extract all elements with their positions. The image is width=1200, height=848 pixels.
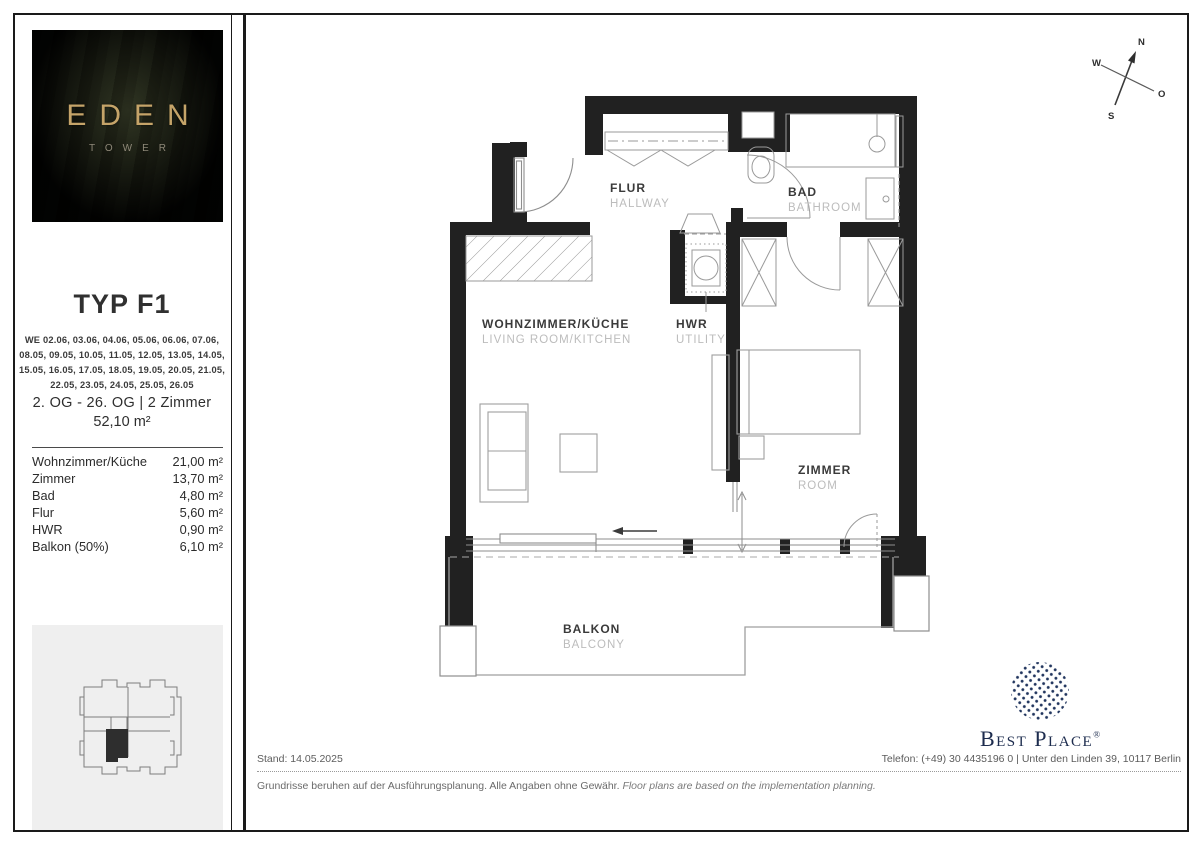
- label-wohn-de: WOHNZIMMER/KÜCHE: [482, 316, 629, 331]
- shower-tray: [786, 114, 895, 167]
- eden-tower-logo: EDEN TOWER: [32, 30, 223, 222]
- label-zimmer-de: ZIMMER: [798, 463, 851, 477]
- label-hwr-de: HWR: [676, 317, 708, 331]
- total-area: 52,10 m²: [13, 414, 231, 430]
- room-label: Bad: [32, 487, 55, 504]
- kitchen-zone-hatch: [466, 236, 592, 281]
- floors-and-rooms-line: 2. OG - 26. OG | 2 Zimmer: [13, 395, 231, 411]
- bedroom-door-and-wardrobes: [742, 237, 903, 306]
- compass-south-label: S: [1108, 111, 1114, 122]
- room-value: 0,90 m²: [180, 521, 223, 538]
- compass-needle: [1101, 51, 1154, 105]
- table-row: Wohnzimmer/Küche 21,00 m²: [32, 453, 223, 470]
- best-place-globe-icon: [999, 650, 1081, 732]
- room-value: 5,60 m²: [180, 504, 223, 521]
- building-keyplan: [32, 625, 223, 830]
- table-row: Zimmer 13,70 m²: [32, 470, 223, 487]
- table-row: Balkon (50%) 6,10 m²: [32, 538, 223, 555]
- balcony-outline: [449, 557, 893, 675]
- coffee-table: [560, 434, 597, 472]
- unit-numbers-line: 22.05, 23.05, 24.05, 25.05, 26.05: [13, 378, 231, 393]
- label-hwr-en: UTILITY: [676, 334, 726, 346]
- compass-north-label: N: [1138, 37, 1145, 48]
- washing-machine: [692, 250, 720, 286]
- sofa: [480, 404, 528, 502]
- sliding-door-indicator: [733, 482, 746, 552]
- sidebar-divider-thick: [243, 13, 246, 832]
- unit-numbers-line: WE 02.06, 03.06, 04.06, 05.06, 06.06, 07…: [13, 333, 231, 348]
- room-value: 4,80 m²: [180, 487, 223, 504]
- floorplan-drawing: FLUR HALLWAY BAD BATHROOM WOHNZIMMER/KÜC…: [430, 80, 960, 700]
- sliding-door-arrow: [612, 527, 657, 535]
- room-label: Wohnzimmer/Küche: [32, 453, 147, 470]
- label-flur-de: FLUR: [610, 181, 646, 195]
- best-place-brand: Best Place®: [955, 662, 1125, 752]
- plan-date: Stand: 14.05.2025: [257, 753, 343, 765]
- label-balkon-de: BALKON: [563, 622, 620, 636]
- brand-text: Best Place: [980, 726, 1093, 751]
- room-label: HWR: [32, 521, 63, 538]
- compass-west-label: W: [1092, 58, 1101, 69]
- apartment-type-title: TYP F1: [13, 289, 231, 320]
- hall-wardrobe: [605, 132, 728, 166]
- disclaimer-english: Floor plans are based on the implementat…: [622, 780, 875, 792]
- utility-door-flap: [680, 214, 720, 233]
- disclaimer-english-text: Floor plans are based on the implementat…: [622, 780, 875, 792]
- table-top-rule: [32, 447, 223, 448]
- floorplan-brochure-page: EDEN TOWER TYP F1 WE 02.06, 03.06, 04.06…: [0, 0, 1200, 848]
- footer-divider: [257, 771, 1181, 772]
- table-row: HWR 0,90 m²: [32, 521, 223, 538]
- label-wohn-en: LIVING ROOM/KITCHEN: [482, 334, 631, 346]
- room-area-table: Wohnzimmer/Küche 21,00 m² Zimmer 13,70 m…: [32, 453, 223, 555]
- balcony-glazing: [466, 534, 895, 552]
- disclaimer-german: Grundrisse beruhen auf der Ausführungspl…: [257, 780, 620, 792]
- label-zimmer-en: ROOM: [798, 480, 838, 492]
- label-bad-de: BAD: [788, 185, 817, 199]
- room-label: Zimmer: [32, 470, 75, 487]
- shower-head: [869, 136, 885, 152]
- room-value: 6,10 m²: [180, 538, 223, 555]
- room-label: Balkon (50%): [32, 538, 109, 555]
- unit-numbers-line: 15.05, 16.05, 17.05, 18.05, 19.05, 20.05…: [13, 363, 231, 378]
- disclaimer: Grundrisse beruhen auf der Ausführungspl…: [257, 780, 876, 792]
- contact-line: Telefon: (+49) 30 4435196 0 | Unter den …: [882, 753, 1181, 765]
- nightstand: [739, 436, 764, 459]
- right-planter: [894, 576, 929, 631]
- left-planter: [440, 626, 476, 676]
- entrance-door: [514, 158, 573, 212]
- sidebar-divider-thin: [231, 13, 232, 832]
- room-label: Flur: [32, 504, 54, 521]
- unit-numbers-list: WE 02.06, 03.06, 04.06, 05.06, 06.06, 07…: [13, 333, 231, 393]
- logo-title: EDEN: [53, 99, 201, 133]
- registered-mark: ®: [1093, 730, 1100, 740]
- compass-east-label: O: [1158, 89, 1165, 100]
- table-row: Flur 5,60 m²: [32, 504, 223, 521]
- washbasin: [866, 178, 894, 219]
- room-value: 13,70 m²: [172, 470, 223, 487]
- label-bad-en: BATHROOM: [788, 202, 862, 214]
- bedroom-door-arc: [787, 237, 840, 290]
- room-value: 21,00 m²: [172, 453, 223, 470]
- label-flur-en: HALLWAY: [610, 198, 670, 210]
- compass-rose: N W O S: [1085, 25, 1195, 135]
- best-place-name: Best Place®: [955, 726, 1125, 752]
- shaft-niche: [742, 112, 774, 138]
- unit-numbers-line: 08.05, 09.05, 10.05, 11.05, 12.05, 13.05…: [13, 348, 231, 363]
- keyplan-drawing: [32, 625, 223, 830]
- bed: [737, 350, 860, 434]
- walls: [445, 96, 926, 628]
- table-row: Bad 4,80 m²: [32, 487, 223, 504]
- logo-subtitle: TOWER: [79, 143, 176, 154]
- keyplan-highlighted-unit: [106, 729, 128, 762]
- label-balkon-en: BALCONY: [563, 639, 625, 651]
